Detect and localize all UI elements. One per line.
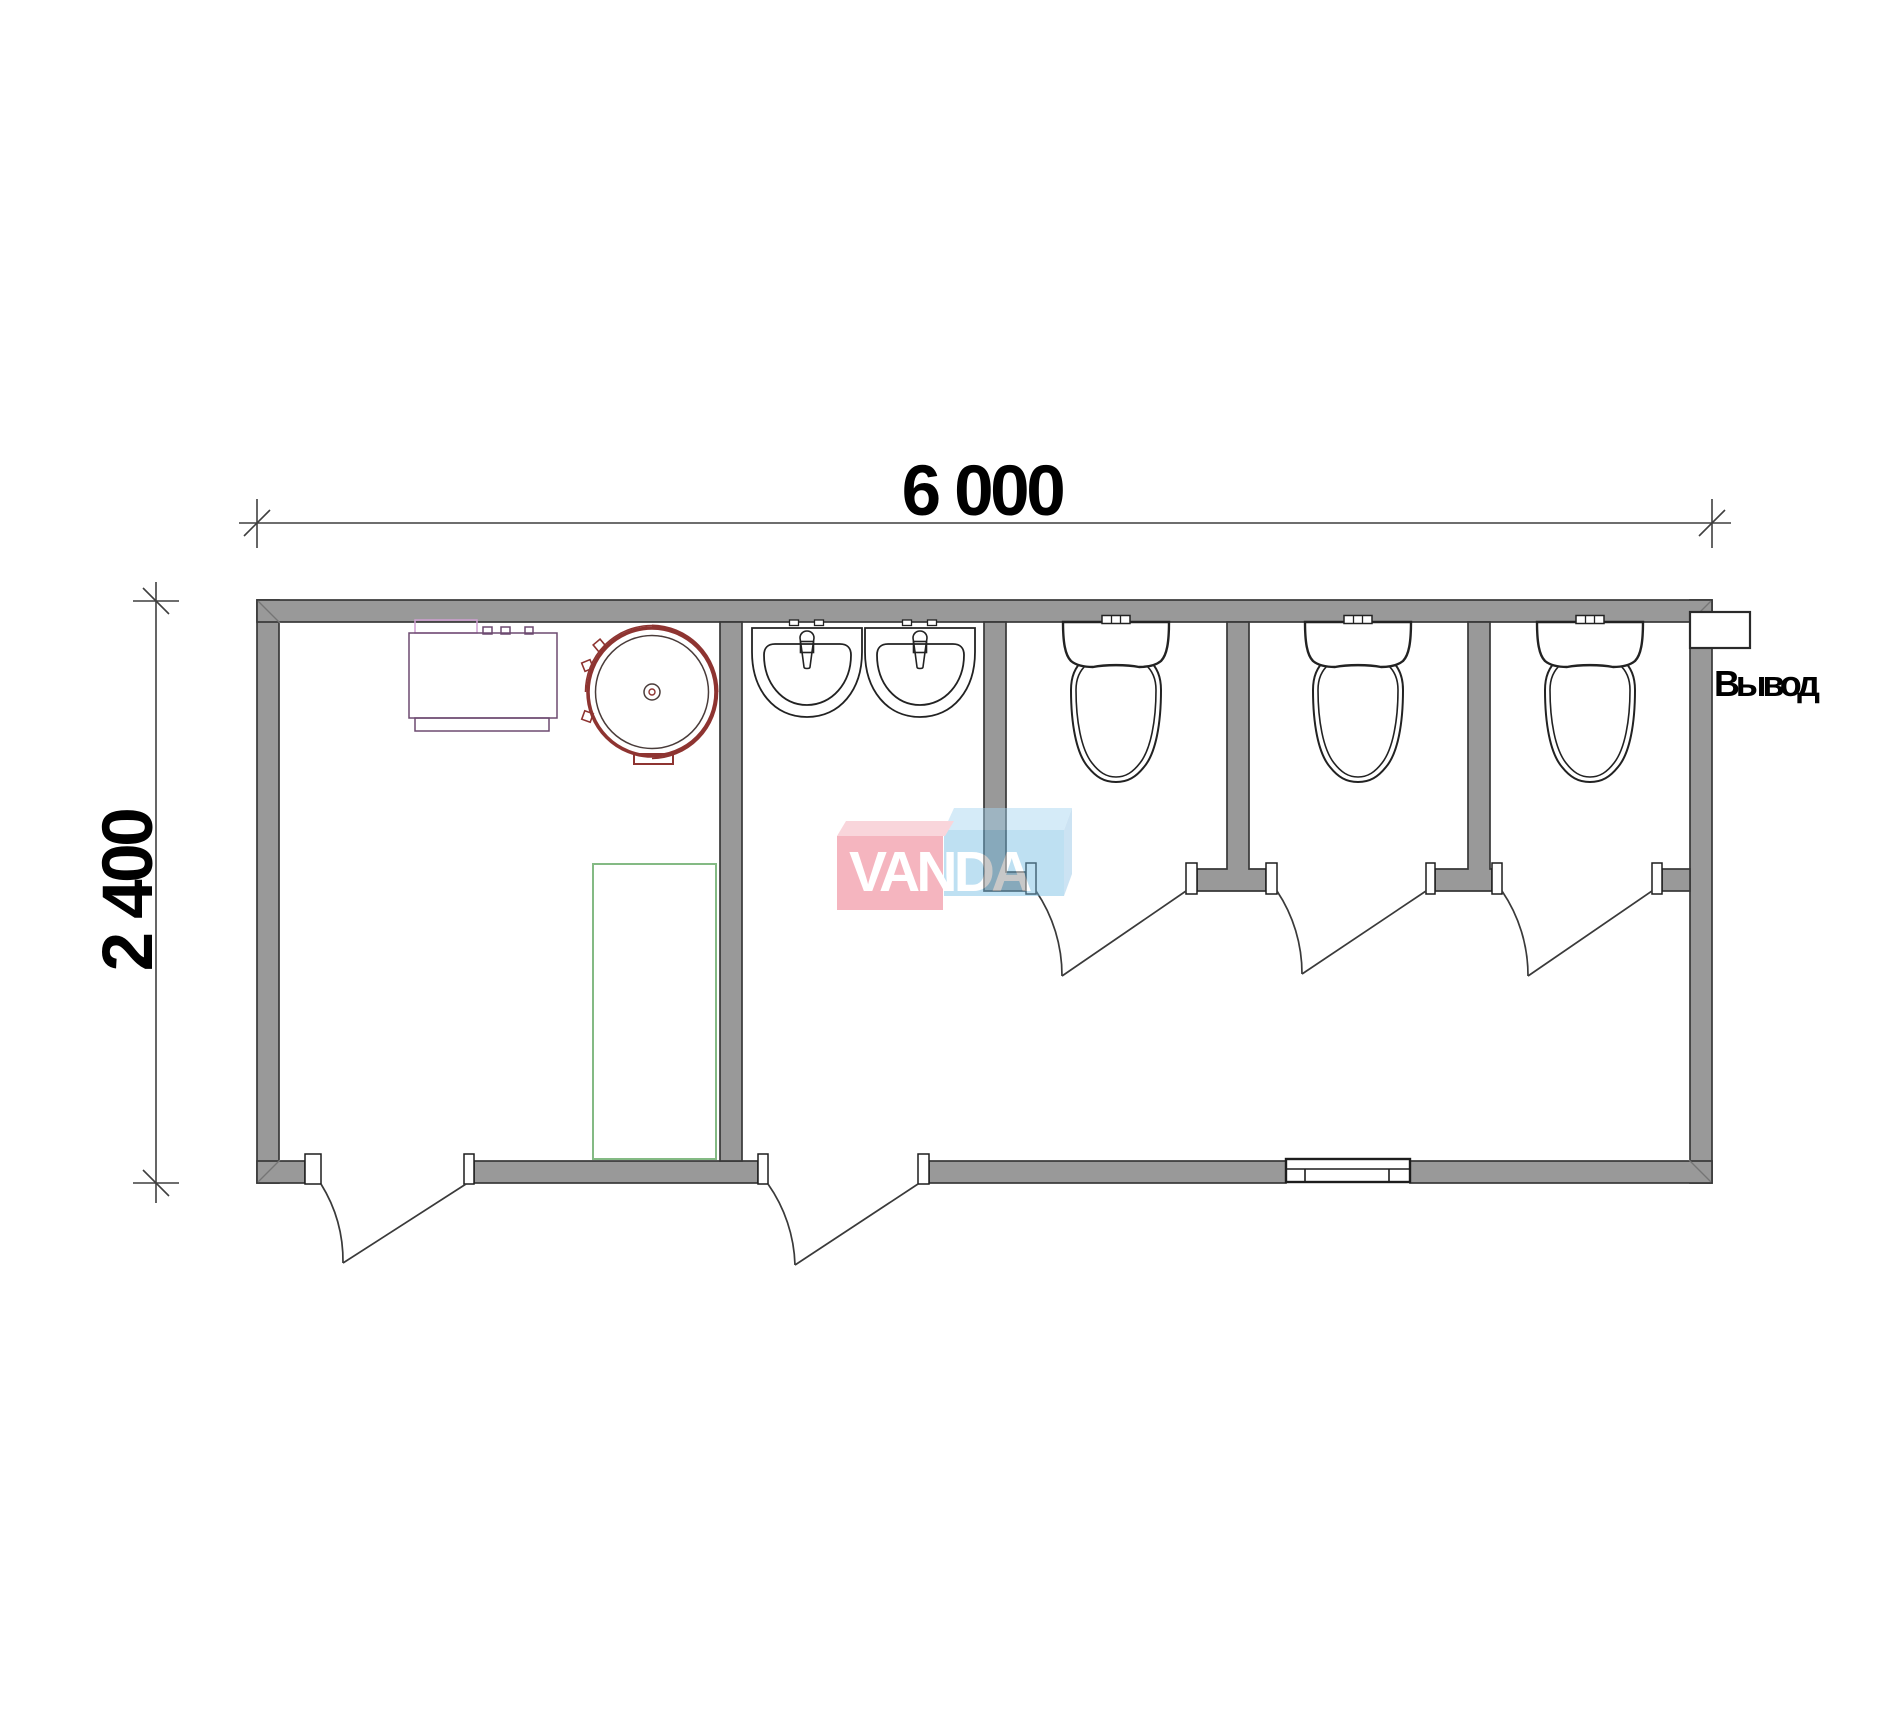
- svg-text:Вывод: Вывод: [1714, 663, 1820, 704]
- svg-text:6 000: 6 000: [902, 452, 1064, 531]
- svg-text:2 400: 2 400: [89, 810, 168, 972]
- svg-text:VANDA: VANDA: [849, 840, 1031, 904]
